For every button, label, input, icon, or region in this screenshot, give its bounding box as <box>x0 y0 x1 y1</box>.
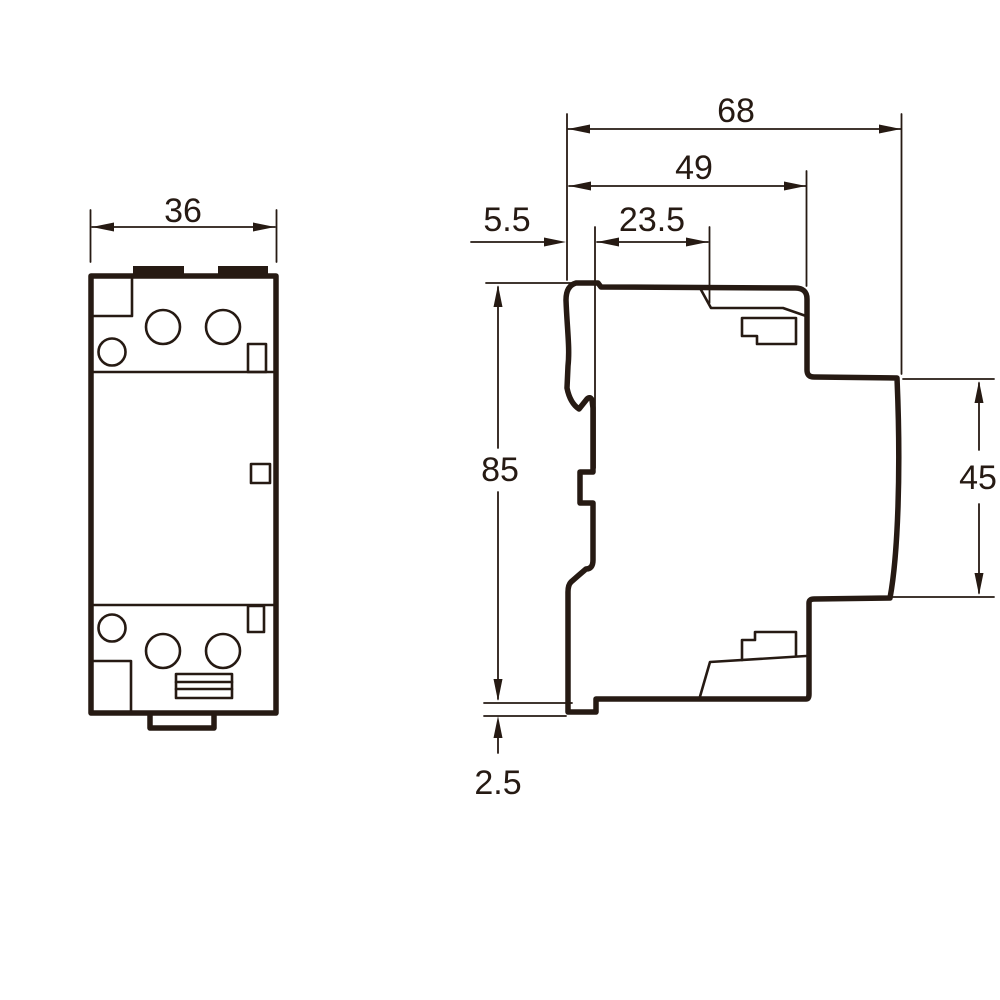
dimension-total-depth: 68 <box>567 92 902 374</box>
dimension-upper-depth: 49 <box>569 149 807 286</box>
arrowhead-down <box>975 573 984 595</box>
arrowhead-left <box>597 238 619 247</box>
arrowhead-left <box>92 223 114 232</box>
arrowhead-up <box>975 381 984 403</box>
arrowhead-left <box>569 182 591 191</box>
side-view <box>566 283 899 712</box>
front-lower-right-slot <box>248 606 264 632</box>
arrowhead-right <box>544 238 566 247</box>
dimension-recess-depth: 23.5 <box>595 201 710 468</box>
upper-depth-label: 49 <box>675 149 713 187</box>
front-bottom-foot <box>150 714 214 728</box>
front-middle-window <box>251 464 270 483</box>
front-upper-hole-2 <box>206 310 240 344</box>
front-top-left-notch <box>93 278 132 316</box>
recess-depth-label: 23.5 <box>619 201 685 239</box>
dimension-front-width: 36 <box>91 192 277 262</box>
front-upper-small-hole <box>99 339 126 366</box>
front-offset-label: 5.5 <box>483 201 530 239</box>
arrowhead-down <box>494 679 503 701</box>
front-label-plate-outline <box>176 674 232 698</box>
dimension-rail-clip-depth: 2.5 <box>474 716 566 802</box>
arrowhead-right <box>879 125 901 134</box>
front-label-plate <box>176 674 232 698</box>
side-profile-outline <box>566 283 899 712</box>
front-lower-hole-2 <box>206 634 240 668</box>
front-lower-small-hole <box>99 615 126 642</box>
arrowhead-right <box>784 182 806 191</box>
rail-clip-depth-label: 2.5 <box>474 764 521 802</box>
front-upper-hole-1 <box>146 310 180 344</box>
front-lower-hole-1 <box>146 634 180 668</box>
arrowhead-up <box>494 285 503 307</box>
front-width-label: 36 <box>164 192 202 230</box>
side-upper-clip-latch <box>742 318 796 344</box>
side-lower-clip-edge <box>699 656 806 700</box>
side-upper-clip-edge <box>700 288 806 316</box>
side-lower-clip-latch <box>742 632 796 660</box>
arrowhead-right <box>686 238 708 247</box>
total-depth-label: 68 <box>717 92 755 130</box>
front-bottom-left-notch <box>93 661 131 711</box>
dimension-front-offset: 5.5 <box>471 201 566 247</box>
drawing-canvas: 36 68 49 5.5 2 <box>0 0 1000 1000</box>
dimension-rear-height: 45 <box>893 379 997 597</box>
arrowhead-up <box>494 716 503 738</box>
front-upper-right-slot <box>248 344 266 372</box>
arrowhead-right <box>253 223 275 232</box>
rear-height-label: 45 <box>959 459 997 497</box>
arrowhead-left <box>568 125 590 134</box>
overall-height-label: 85 <box>481 451 519 489</box>
dimension-overall-height: 85 <box>481 283 578 703</box>
front-view <box>91 266 276 728</box>
technical-drawing: 36 68 49 5.5 2 <box>0 0 1000 1000</box>
